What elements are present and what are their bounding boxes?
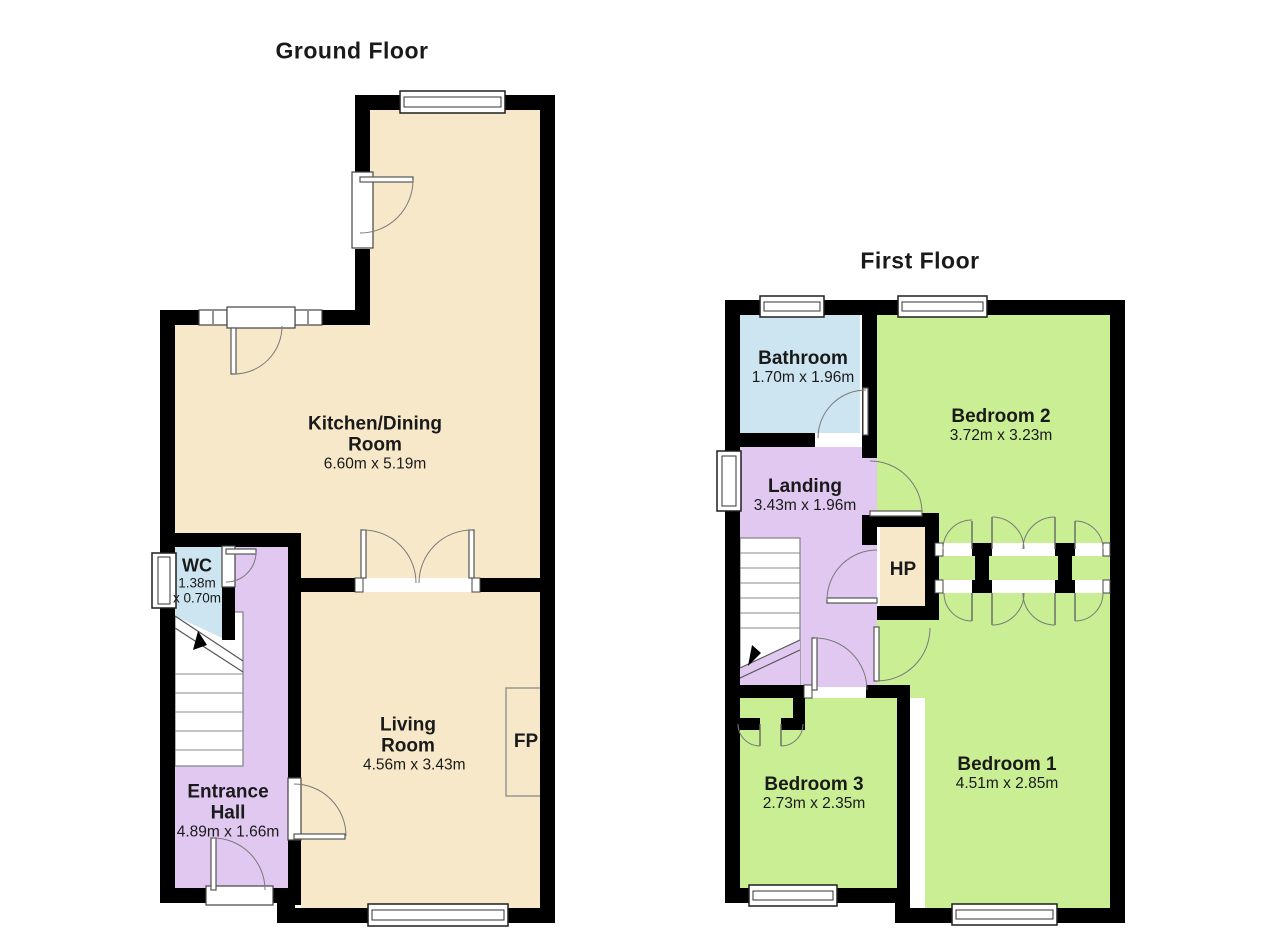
room-dims: 3.72m x 3.23m (950, 427, 1053, 444)
bedroom1-area (925, 593, 1110, 908)
bedroom3-label: Bedroom 3 2.73m x 2.35m (763, 774, 866, 812)
bedroom1-window (952, 904, 1057, 925)
kitchen-top-window (400, 91, 505, 113)
bathroom-label: Bathroom 1.70m x 1.96m (752, 348, 855, 386)
room-dims: 4.89m x 1.66m (171, 824, 286, 841)
bedroom3-window (749, 885, 837, 906)
room-dims-line2: x 0.70m (173, 591, 221, 606)
living-room-window (368, 904, 508, 926)
bedroom2-window (898, 296, 987, 317)
bedroom1-label: Bedroom 1 4.51m x 2.85m (956, 754, 1059, 792)
landing-label: Landing 3.43m x 1.96m (754, 476, 857, 514)
wc-label: WC 1.38m x 0.70m (173, 557, 221, 606)
room-dims: 4.51m x 2.85m (956, 775, 1059, 792)
room-dims: 4.56m x 3.43m (363, 757, 453, 774)
landing-window (717, 451, 741, 511)
first-floor-title: First Floor (860, 248, 979, 275)
room-dims: 1.70m x 1.96m (752, 369, 855, 386)
bathroom-window (760, 296, 824, 317)
room-name: Bathroom (752, 348, 855, 369)
room-name: Entrance Hall (171, 782, 286, 824)
floorplan-page: Ground Floor First Floor Kitchen/Dining … (0, 0, 1280, 931)
wardrobe-interior-strip (935, 556, 1110, 580)
room-name: WC (173, 557, 221, 576)
room-name: Living Room (363, 715, 453, 757)
room-name: Bedroom 1 (956, 754, 1059, 775)
ground-floor-title: Ground Floor (276, 38, 429, 65)
bedroom2-label: Bedroom 2 3.72m x 3.23m (950, 406, 1053, 444)
room-dims: 2.73m x 2.35m (763, 795, 866, 812)
living-room-label: Living Room 4.56m x 3.43m (363, 715, 453, 774)
room-dims: 6.60m x 5.19m (288, 456, 463, 473)
room-name: Landing (754, 476, 857, 497)
fireplace-label: FP (514, 731, 538, 753)
room-name: Kitchen/Dining Room (288, 414, 463, 456)
room-name: Bedroom 3 (763, 774, 866, 795)
first-floor-plan (717, 296, 1125, 925)
entrance-hall-label: Entrance Hall 4.89m x 1.66m (171, 782, 286, 841)
hot-press-label: HP (890, 559, 916, 581)
kitchen-dining-label: Kitchen/Dining Room 6.60m x 5.19m (288, 414, 463, 473)
room-name: Bedroom 2 (950, 406, 1053, 427)
room-dims-line1: 1.38m (173, 576, 221, 591)
room-dims: 3.43m x 1.96m (754, 497, 857, 514)
